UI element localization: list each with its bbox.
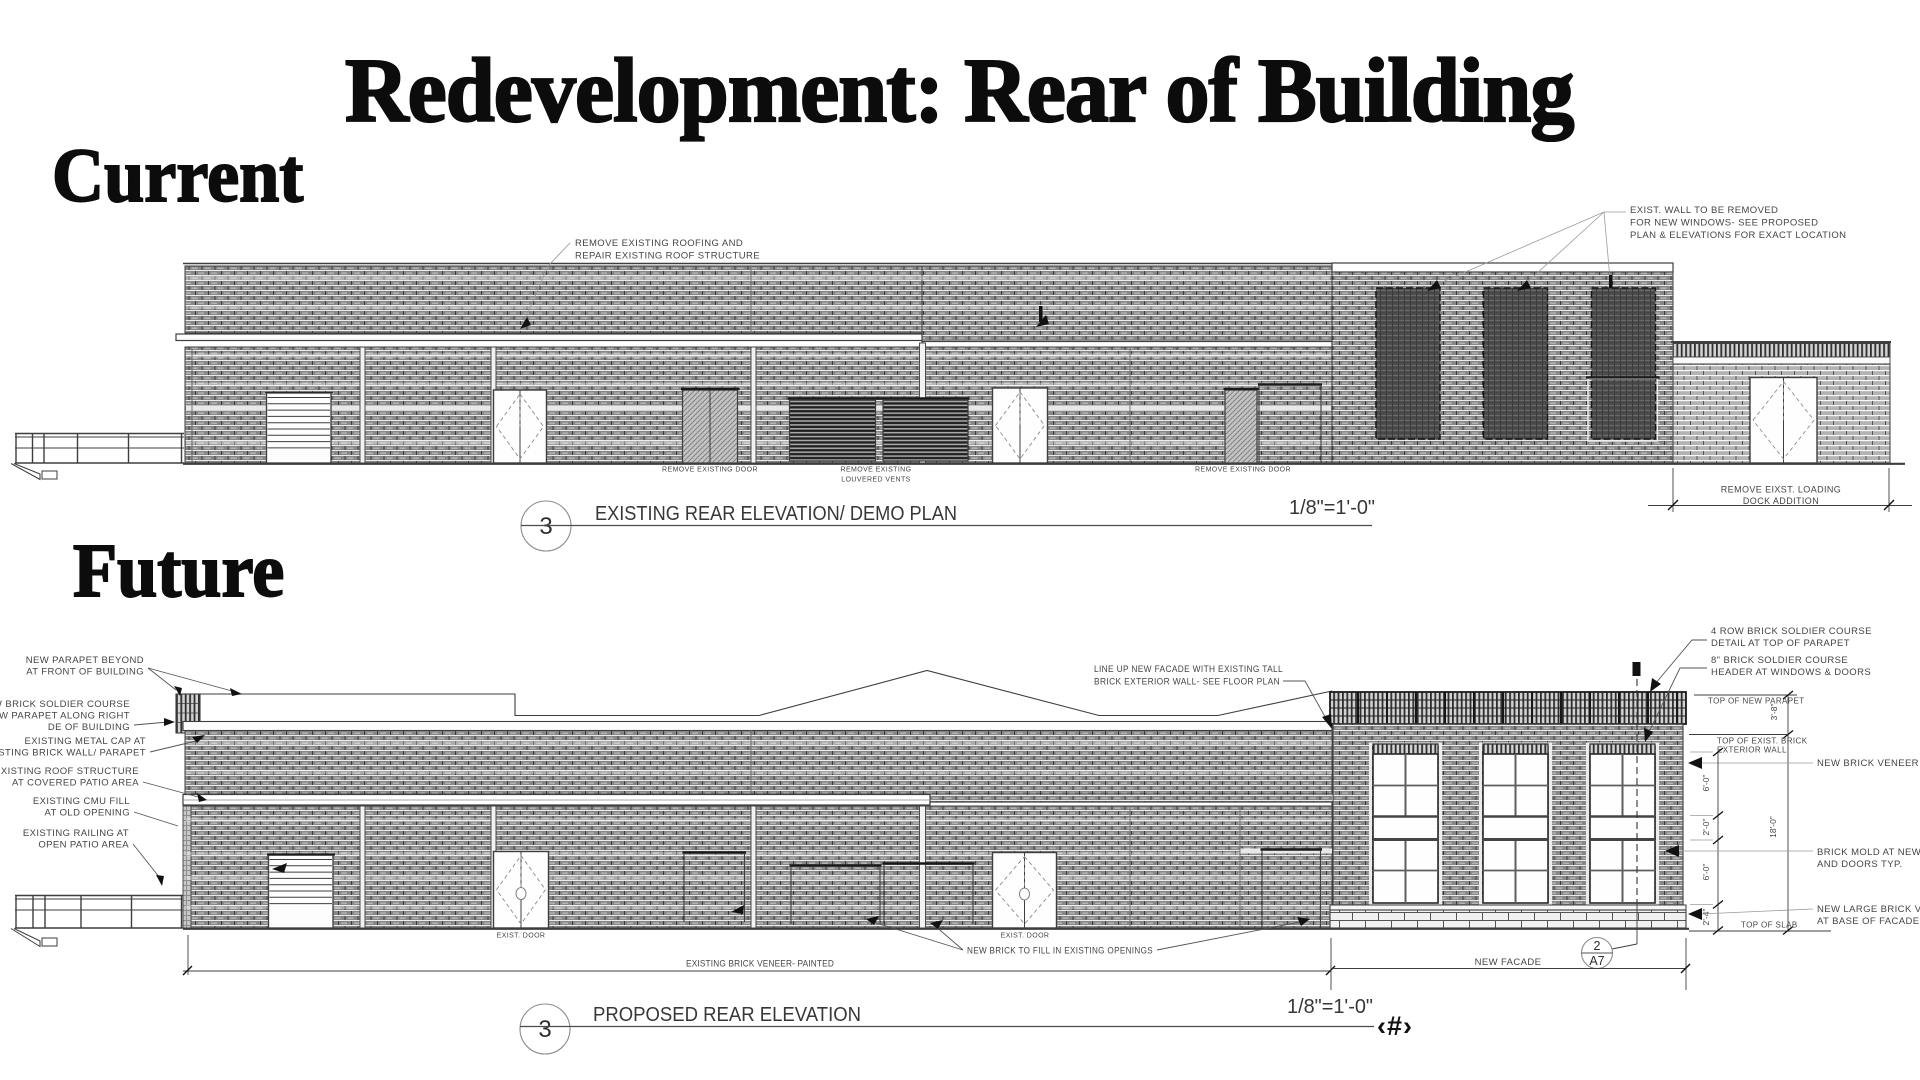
svg-text:6'-0": 6'-0" [1701,775,1711,792]
svg-text:LINE UP NEW FACADE WITH EXISTI: LINE UP NEW FACADE WITH EXISTING TALL [1094,664,1283,675]
svg-text:EXISTING REAR ELEVATION/ DEMO: EXISTING REAR ELEVATION/ DEMO PLAN [595,503,957,525]
svg-text:AT FRONT OF BUILDING: AT FRONT OF BUILDING [26,667,144,678]
svg-text:OPEN PATIO AREA: OPEN PATIO AREA [38,840,129,851]
svg-text:A7: A7 [1589,954,1604,968]
svg-text:BRICK EXTERIOR WALL- SEE FLOOR: BRICK EXTERIOR WALL- SEE FLOOR PLAN [1094,677,1280,688]
svg-text:T NEW PARAPET ALONG RIGHT: T NEW PARAPET ALONG RIGHT [0,711,130,722]
svg-text:3: 3 [539,513,552,540]
svg-text:EXISTING BRICK WALL/ PARAPET: EXISTING BRICK WALL/ PARAPET [0,748,146,759]
svg-text:EXISTING METAL CAP AT: EXISTING METAL CAP AT [24,736,146,747]
svg-text:AT OLD OPENING: AT OLD OPENING [45,808,131,819]
svg-text:18'-0": 18'-0" [1768,816,1778,838]
svg-text:1/8"=1'-0": 1/8"=1'-0" [1289,497,1375,519]
svg-text:BRICK MOLD AT NEW W: BRICK MOLD AT NEW W [1817,847,1920,858]
svg-text:PROPOSED REAR ELEVATION: PROPOSED REAR ELEVATION [593,1004,861,1026]
svg-text:DOCK ADDITION: DOCK ADDITION [1743,496,1819,506]
svg-text:NEW BRICK VENEER: NEW BRICK VENEER [1817,758,1919,769]
svg-text:NEW FACADE: NEW FACADE [1475,957,1542,968]
svg-text:TOP OF NEW PARAPET: TOP OF NEW PARAPET [1708,697,1805,706]
svg-text:2'-4": 2'-4" [1701,909,1711,926]
svg-text:TOP OF SLAB: TOP OF SLAB [1741,921,1798,930]
svg-text:AND DOORS TYP.: AND DOORS TYP. [1817,859,1903,870]
svg-text:3: 3 [538,1016,551,1043]
svg-text:REMOVE EXISTING: REMOVE EXISTING [841,467,912,474]
svg-text:ROW BRICK SOLDIER COURSE: ROW BRICK SOLDIER COURSE [0,699,130,710]
svg-text:1/8"=1'-0": 1/8"=1'-0" [1287,996,1373,1018]
svg-text:REMOVE EXISTING DOOR: REMOVE EXISTING DOOR [1195,467,1291,474]
svg-text:REPAIR EXISTING ROOF STRUCTURE: REPAIR EXISTING ROOF STRUCTURE [575,251,760,262]
svg-text:8" BRICK SOLDIER COURSE: 8" BRICK SOLDIER COURSE [1711,655,1848,666]
svg-text:AT BASE OF FACADE: AT BASE OF FACADE [1817,916,1920,927]
svg-text:HEADER AT WINDOWS & DOORS: HEADER AT WINDOWS & DOORS [1711,667,1871,678]
svg-text:EXTERIOR WALL: EXTERIOR WALL [1717,746,1787,755]
svg-text:FOR NEW WINDOWS- SEE PROPOSED: FOR NEW WINDOWS- SEE PROPOSED [1630,218,1818,229]
svg-text:EXIST. WALL TO BE REMOVED: EXIST. WALL TO BE REMOVED [1630,205,1778,216]
svg-text:TOP OF EXIST. BRICK: TOP OF EXIST. BRICK [1717,737,1808,746]
svg-text:REMOVE EXISTING ROOFING AND: REMOVE EXISTING ROOFING AND [575,238,743,249]
svg-text:DETAIL AT TOP OF PARAPET: DETAIL AT TOP OF PARAPET [1711,638,1850,649]
svg-text:REMOVE EXISTING DOOR: REMOVE EXISTING DOOR [662,467,758,474]
svg-text:NEW BRICK TO FILL IN EXISTING: NEW BRICK TO FILL IN EXISTING OPENINGS [967,946,1153,957]
svg-text:6'-0": 6'-0" [1701,864,1711,881]
svg-text:DE OF BUILDING: DE OF BUILDING [48,722,130,733]
svg-text:3'-8": 3'-8" [1769,704,1779,721]
svg-text:AT COVERED PATIO AREA: AT COVERED PATIO AREA [12,778,139,789]
svg-text:EXISTING BRICK VENEER- PAINTED: EXISTING BRICK VENEER- PAINTED [686,959,834,970]
svg-text:2'-0": 2'-0" [1701,819,1711,836]
svg-text:EXISTING CMU FILL: EXISTING CMU FILL [33,796,130,807]
svg-text:EXISTING ROOF STRUCTURE: EXISTING ROOF STRUCTURE [0,766,139,777]
svg-text:REMOVE EIXST. LOADING: REMOVE EIXST. LOADING [1721,485,1841,495]
svg-text:2: 2 [1594,939,1601,953]
svg-text:‹#›: ‹#› [1377,1011,1413,1041]
svg-text:NEW LARGE BRICK VEN: NEW LARGE BRICK VEN [1817,904,1920,915]
svg-text:NEW PARAPET BEYOND: NEW PARAPET BEYOND [26,655,144,666]
svg-text:4 ROW BRICK SOLDIER COURSE: 4 ROW BRICK SOLDIER COURSE [1711,626,1872,637]
svg-text:EXIST. DOOR: EXIST. DOOR [1001,933,1050,940]
svg-text:EXIST. DOOR: EXIST. DOOR [497,933,546,940]
svg-text:PLAN & ELEVATIONS FOR EXACT LO: PLAN & ELEVATIONS FOR EXACT LOCATION [1630,230,1846,241]
svg-text:LOUVERED VENTS: LOUVERED VENTS [841,477,910,484]
svg-text:EXISTING RAILING AT: EXISTING RAILING AT [23,828,129,839]
